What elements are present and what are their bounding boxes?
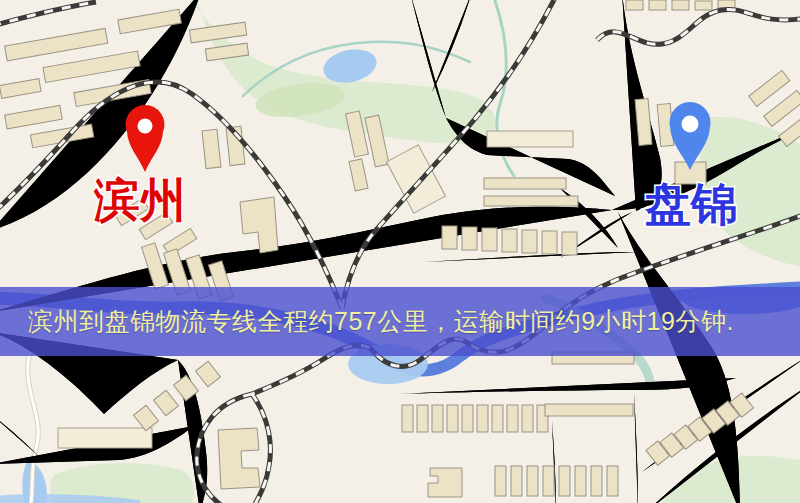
origin-city-label: 滨州 [93, 174, 186, 226]
route-info-text: 滨州到盘锦物流专线全程约757公里，运输时间约9小时19分钟. [28, 305, 734, 338]
destination-city-label: 盘锦 [644, 178, 737, 230]
map-image: 滨州 盘锦 [0, 0, 800, 503]
map-canvas: 滨州 盘锦 滨州到盘锦物流专线全程约757公里，运输时间约9小时19分钟. [0, 0, 800, 503]
route-info-banner: 滨州到盘锦物流专线全程约757公里，运输时间约9小时19分钟. [0, 287, 800, 356]
origin-pin-hole [138, 119, 153, 134]
destination-pin-hole [682, 116, 699, 133]
